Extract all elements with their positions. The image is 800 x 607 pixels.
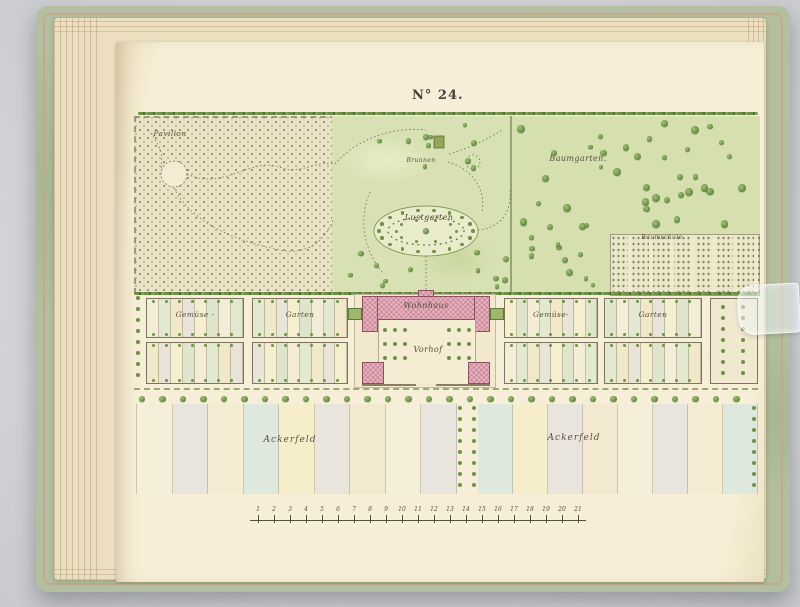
field-strip bbox=[386, 404, 422, 494]
scale-number: 18 bbox=[526, 506, 534, 513]
tree-dot-icon bbox=[688, 300, 691, 303]
tree-dot-icon bbox=[721, 327, 725, 331]
tree-dot-icon bbox=[434, 219, 437, 222]
tree-dot-icon bbox=[636, 344, 639, 347]
tree-dot-icon bbox=[471, 229, 474, 232]
tree-dot-icon bbox=[460, 216, 463, 219]
tree-dot-icon bbox=[323, 344, 326, 347]
tree-dot-icon bbox=[323, 300, 326, 303]
tree-dot-icon bbox=[588, 300, 591, 303]
tree-dot-icon bbox=[323, 333, 326, 336]
scale-number: 16 bbox=[494, 506, 502, 513]
tree-dot-icon bbox=[191, 379, 194, 382]
avenue-tree-icon bbox=[139, 396, 145, 402]
scale-number: 11 bbox=[414, 506, 422, 513]
tree-icon bbox=[358, 251, 363, 256]
scale-tick bbox=[418, 515, 419, 523]
label-gemuese-right: Gemüse- bbox=[533, 311, 569, 319]
label-wohnhaus: Wohnhaus bbox=[403, 302, 448, 310]
tree-dot-icon bbox=[136, 329, 140, 333]
avenue-tree-icon bbox=[467, 396, 473, 402]
tree-dot-icon bbox=[393, 328, 397, 332]
label-ackerfeld-left: Ackerfeld bbox=[264, 436, 317, 445]
tree-icon bbox=[685, 188, 693, 196]
avenue-tree-icon bbox=[385, 396, 391, 402]
tree-dot-icon bbox=[623, 379, 626, 382]
scale-tick bbox=[578, 515, 579, 523]
tree-dot-icon bbox=[178, 344, 181, 347]
tree-icon bbox=[719, 140, 724, 145]
scale-tick bbox=[370, 515, 371, 523]
tree-dot-icon bbox=[662, 379, 665, 382]
tree-dot-icon bbox=[623, 344, 626, 347]
avenue-tree-icon bbox=[590, 396, 596, 402]
avenue-tree-icon bbox=[692, 396, 698, 402]
bed-strip bbox=[159, 343, 171, 383]
avenue-tree-icon bbox=[549, 396, 555, 402]
tree-dot-icon bbox=[165, 333, 168, 336]
garden-plot bbox=[146, 342, 244, 384]
scale-tick bbox=[402, 515, 403, 523]
tree-dot-icon bbox=[393, 342, 397, 346]
tree-dot-icon bbox=[472, 483, 477, 488]
tree-dot-icon bbox=[383, 356, 387, 360]
wohnhaus-wing-right bbox=[474, 296, 490, 332]
tree-icon bbox=[652, 220, 660, 228]
scale-tick bbox=[482, 515, 483, 523]
tree-dot-icon bbox=[393, 356, 397, 360]
tree-dot-icon bbox=[662, 300, 665, 303]
tree-dot-icon bbox=[510, 300, 513, 303]
tree-dot-icon bbox=[662, 333, 665, 336]
forecourt-wall-right bbox=[436, 384, 490, 386]
tree-dot-icon bbox=[575, 300, 578, 303]
tree-dot-icon bbox=[284, 300, 287, 303]
bed-strip bbox=[517, 343, 529, 383]
tree-dot-icon bbox=[675, 333, 678, 336]
tree-dot-icon bbox=[467, 356, 471, 360]
tree-dot-icon bbox=[152, 333, 155, 336]
tree-icon bbox=[693, 174, 698, 179]
tree-dot-icon bbox=[741, 338, 745, 342]
tree-dot-icon bbox=[284, 333, 287, 336]
tree-dot-icon bbox=[258, 333, 261, 336]
tree-dot-icon bbox=[165, 379, 168, 382]
scale-tick bbox=[562, 515, 563, 523]
scale-tick bbox=[466, 515, 467, 523]
scale-tick bbox=[530, 515, 531, 523]
bed-strip bbox=[231, 299, 243, 337]
bed-strip bbox=[689, 343, 701, 383]
tree-dot-icon bbox=[230, 300, 233, 303]
tree-dot-icon bbox=[136, 318, 140, 322]
bed-strip bbox=[288, 343, 300, 383]
scale-tick bbox=[306, 515, 307, 523]
avenue-tree-icon bbox=[487, 396, 493, 402]
field-strip bbox=[279, 404, 315, 494]
tree-dot-icon bbox=[258, 344, 261, 347]
scale-number: 7 bbox=[352, 506, 356, 513]
tree-icon bbox=[578, 252, 583, 257]
bed-strip bbox=[574, 343, 586, 383]
bed-strip bbox=[195, 343, 207, 383]
scale-bar: 123456789101112131415161718192021 bbox=[250, 506, 590, 528]
tree-dot-icon bbox=[271, 300, 274, 303]
tree-icon bbox=[474, 250, 479, 255]
label-ackerfeld-right: Ackerfeld bbox=[548, 434, 601, 443]
garden-plot bbox=[252, 342, 348, 384]
tree-icon bbox=[600, 150, 606, 156]
tree-dot-icon bbox=[403, 328, 407, 332]
label-garten-left: Garten bbox=[286, 311, 315, 319]
tree-dot-icon bbox=[336, 344, 339, 347]
label-baumschule: Baumschule bbox=[641, 235, 682, 241]
tree-dot-icon bbox=[721, 371, 725, 375]
avenue-tree-icon bbox=[364, 396, 370, 402]
tree-dot-icon bbox=[472, 428, 477, 433]
photo-of-open-book: N° 24. bbox=[0, 0, 800, 607]
avenue-tree-icon bbox=[508, 396, 514, 402]
scale-tick bbox=[274, 515, 275, 523]
bed-strip bbox=[207, 343, 219, 383]
tree-dot-icon bbox=[721, 338, 725, 342]
tree-icon bbox=[476, 268, 481, 273]
field-strip bbox=[315, 404, 351, 494]
tree-dot-icon bbox=[395, 230, 398, 233]
tree-icon bbox=[423, 228, 429, 234]
bed-strip bbox=[505, 299, 517, 337]
field-strip bbox=[618, 404, 653, 494]
scale-number: 12 bbox=[430, 506, 438, 513]
tree-dot-icon bbox=[688, 344, 691, 347]
plastic-page-holder-tab bbox=[737, 282, 800, 335]
bed-strip bbox=[335, 299, 347, 337]
tree-dot-icon bbox=[610, 333, 613, 336]
tree-icon bbox=[465, 158, 471, 164]
tree-dot-icon bbox=[688, 379, 691, 382]
tree-icon bbox=[662, 155, 667, 160]
label-gemuese-left: Gemüse - bbox=[176, 311, 215, 319]
scale-number: 9 bbox=[384, 506, 388, 513]
scale-number: 10 bbox=[398, 506, 406, 513]
bed-strip bbox=[219, 343, 231, 383]
tree-dot-icon bbox=[721, 360, 725, 364]
outbuilding-left bbox=[362, 362, 384, 384]
tree-icon bbox=[383, 279, 388, 284]
bed-strip bbox=[265, 299, 277, 337]
tree-icon bbox=[529, 235, 534, 240]
bed-strip bbox=[147, 343, 159, 383]
avenue-tree-icon bbox=[159, 396, 165, 402]
bed-strip bbox=[253, 299, 265, 337]
avenue-tree-icon bbox=[426, 396, 432, 402]
tree-dot-icon bbox=[549, 344, 552, 347]
tree-dot-icon bbox=[510, 344, 513, 347]
bed-strip bbox=[528, 343, 540, 383]
bed-strip bbox=[653, 343, 665, 383]
tree-dot-icon bbox=[721, 305, 725, 309]
bed-strip bbox=[159, 299, 171, 337]
tree-dot-icon bbox=[549, 379, 552, 382]
tree-dot-icon bbox=[297, 344, 300, 347]
tree-icon bbox=[377, 139, 382, 144]
tree-icon bbox=[542, 175, 549, 182]
tree-dot-icon bbox=[741, 371, 745, 375]
bed-strip bbox=[335, 343, 347, 383]
tree-dot-icon bbox=[536, 300, 539, 303]
field-strip bbox=[478, 404, 513, 494]
tree-icon bbox=[426, 143, 430, 147]
tree-dot-icon bbox=[403, 342, 407, 346]
garden-plot bbox=[604, 342, 702, 384]
tree-dot-icon bbox=[588, 333, 591, 336]
tree-dot-icon bbox=[472, 450, 477, 455]
scale-tick bbox=[434, 515, 435, 523]
tree-dot-icon bbox=[662, 344, 665, 347]
tree-icon bbox=[738, 184, 746, 192]
tree-dot-icon bbox=[178, 333, 181, 336]
tree-icon bbox=[563, 204, 571, 212]
tree-dot-icon bbox=[204, 333, 207, 336]
bed-strip bbox=[665, 343, 677, 383]
scale-tick bbox=[498, 515, 499, 523]
tree-dot-icon bbox=[403, 356, 407, 360]
tree-dot-icon bbox=[383, 342, 387, 346]
garden-plot bbox=[504, 342, 598, 384]
tree-dot-icon bbox=[536, 333, 539, 336]
tree-dot-icon bbox=[523, 333, 526, 336]
tree-dot-icon bbox=[178, 379, 181, 382]
scale-number: 14 bbox=[462, 506, 470, 513]
avenue-tree-icon bbox=[569, 396, 575, 402]
open-page: N° 24. bbox=[116, 42, 764, 582]
bed-strip bbox=[586, 299, 598, 337]
field-strip bbox=[513, 404, 548, 494]
tree-dot-icon bbox=[230, 344, 233, 347]
tree-dot-icon bbox=[649, 300, 652, 303]
tree-dot-icon bbox=[467, 328, 471, 332]
scale-number: 6 bbox=[336, 506, 340, 513]
bed-strip bbox=[231, 343, 243, 383]
tree-dot-icon bbox=[230, 379, 233, 382]
bed-strip bbox=[677, 343, 689, 383]
tree-dot-icon bbox=[458, 450, 463, 455]
tree-dot-icon bbox=[336, 300, 339, 303]
bed-strip bbox=[171, 343, 183, 383]
bed-strip bbox=[617, 343, 629, 383]
bed-strip bbox=[219, 299, 231, 337]
bed-strip bbox=[277, 343, 289, 383]
book-cover: N° 24. bbox=[36, 6, 790, 592]
tree-dot-icon bbox=[448, 211, 451, 214]
tree-dot-icon bbox=[336, 333, 339, 336]
tree-dot-icon bbox=[191, 344, 194, 347]
bed-strip bbox=[629, 343, 641, 383]
tree-dot-icon bbox=[191, 300, 194, 303]
tree-dot-icon bbox=[457, 328, 461, 332]
tree-dot-icon bbox=[458, 428, 463, 433]
tree-icon bbox=[588, 145, 592, 149]
tree-dot-icon bbox=[377, 229, 380, 232]
tree-dot-icon bbox=[204, 344, 207, 347]
page-stack: N° 24. bbox=[54, 18, 766, 580]
avenue-tree-icon bbox=[631, 396, 637, 402]
scale-number: 21 bbox=[574, 506, 582, 513]
bed-strip bbox=[641, 343, 653, 383]
field-strip bbox=[244, 404, 280, 494]
scale-tick bbox=[290, 515, 291, 523]
tree-dot-icon bbox=[448, 247, 451, 250]
tree-dot-icon bbox=[297, 300, 300, 303]
label-baumgarten: Baumgarten. bbox=[549, 155, 606, 163]
field-strip bbox=[421, 404, 457, 494]
tree-dot-icon bbox=[562, 333, 565, 336]
bed-strip bbox=[689, 299, 701, 337]
field-strip bbox=[137, 404, 173, 494]
tree-dot-icon bbox=[636, 379, 639, 382]
tree-dot-icon bbox=[458, 406, 463, 411]
bed-strip bbox=[540, 343, 552, 383]
tree-dot-icon bbox=[562, 344, 565, 347]
avenue-tree-icon bbox=[733, 396, 739, 402]
scale-number: 15 bbox=[478, 506, 486, 513]
avenue-tree-icon bbox=[221, 396, 227, 402]
bed-strip bbox=[617, 299, 629, 337]
scale-number: 13 bbox=[446, 506, 454, 513]
tree-dot-icon bbox=[136, 340, 140, 344]
bed-strip bbox=[605, 299, 617, 337]
tree-dot-icon bbox=[549, 333, 552, 336]
bed-strip bbox=[605, 343, 617, 383]
tree-dot-icon bbox=[230, 333, 233, 336]
tree-icon bbox=[520, 218, 527, 225]
field-strip bbox=[173, 404, 209, 494]
tree-dot-icon bbox=[310, 333, 313, 336]
tree-dot-icon bbox=[472, 439, 477, 444]
tree-dot-icon bbox=[136, 373, 140, 377]
avenue-tree-icon bbox=[651, 396, 657, 402]
field-strip bbox=[548, 404, 583, 494]
tree-dot-icon bbox=[588, 344, 591, 347]
tree-icon bbox=[493, 276, 498, 281]
tree-dot-icon bbox=[310, 379, 313, 382]
bed-strip bbox=[574, 299, 586, 337]
tree-dot-icon bbox=[460, 243, 463, 246]
label-vorhof: Vorhof bbox=[413, 346, 442, 354]
tree-dot-icon bbox=[458, 461, 463, 466]
scale-number: 19 bbox=[542, 506, 550, 513]
tree-dot-icon bbox=[562, 379, 565, 382]
tree-dot-icon bbox=[588, 379, 591, 382]
tree-dot-icon bbox=[152, 344, 155, 347]
scale-number: 3 bbox=[288, 506, 292, 513]
tree-dot-icon bbox=[610, 379, 613, 382]
tree-icon bbox=[529, 246, 535, 252]
tree-icon bbox=[721, 220, 728, 227]
tree-dot-icon bbox=[472, 406, 477, 411]
tree-dot-icon bbox=[284, 379, 287, 382]
tree-icon bbox=[691, 126, 699, 134]
tree-dot-icon bbox=[401, 247, 404, 250]
tree-dot-icon bbox=[447, 328, 451, 332]
field-strip bbox=[208, 404, 244, 494]
field-strip bbox=[653, 404, 688, 494]
tree-dot-icon bbox=[536, 344, 539, 347]
avenue-tree-icon bbox=[610, 396, 616, 402]
bed-strip bbox=[505, 343, 517, 383]
avenue-tree-icon bbox=[323, 396, 329, 402]
tree-dot-icon bbox=[383, 328, 387, 332]
scale-tick bbox=[354, 515, 355, 523]
tree-dot-icon bbox=[217, 333, 220, 336]
avenue-tree-icon bbox=[180, 396, 186, 402]
tree-icon bbox=[495, 284, 499, 288]
tree-dot-icon bbox=[575, 379, 578, 382]
tree-dot-icon bbox=[401, 211, 404, 214]
tree-icon bbox=[678, 192, 684, 198]
scale-tick bbox=[514, 515, 515, 523]
tree-dot-icon bbox=[649, 333, 652, 336]
tree-icon bbox=[562, 257, 568, 263]
bed-strip bbox=[324, 343, 336, 383]
tree-dot-icon bbox=[636, 300, 639, 303]
tree-dot-icon bbox=[523, 344, 526, 347]
scale-tick bbox=[386, 515, 387, 523]
tree-dot-icon bbox=[447, 356, 451, 360]
tree-icon bbox=[623, 144, 629, 150]
label-brunnen: Brunnen bbox=[406, 158, 435, 164]
avenue-tree-icon bbox=[344, 396, 350, 402]
tree-dot-icon bbox=[136, 351, 140, 355]
tree-icon bbox=[503, 256, 509, 262]
tree-dot-icon bbox=[152, 379, 155, 382]
tree-icon bbox=[423, 164, 428, 169]
tree-dot-icon bbox=[271, 344, 274, 347]
label-pavillon: Pavillon bbox=[153, 130, 186, 138]
page-edges-top bbox=[54, 18, 766, 32]
wohnhaus-wing-left bbox=[362, 296, 378, 332]
tree-dot-icon bbox=[688, 333, 691, 336]
scale-number: 20 bbox=[558, 506, 566, 513]
bed-strip bbox=[300, 343, 312, 383]
tree-dot-icon bbox=[636, 333, 639, 336]
tree-dot-icon bbox=[458, 417, 463, 422]
tree-dot-icon bbox=[472, 417, 477, 422]
tree-dot-icon bbox=[323, 379, 326, 382]
tree-dot-icon bbox=[165, 300, 168, 303]
tree-dot-icon bbox=[675, 379, 678, 382]
tree-dot-icon bbox=[336, 379, 339, 382]
ackerfeld-left-area bbox=[136, 404, 457, 494]
tree-dot-icon bbox=[271, 333, 274, 336]
bed-strip bbox=[677, 299, 689, 337]
tree-dot-icon bbox=[455, 230, 458, 233]
tree-icon bbox=[685, 147, 690, 152]
tree-dot-icon bbox=[310, 344, 313, 347]
avenue-tree-icon bbox=[241, 396, 247, 402]
tree-dot-icon bbox=[416, 250, 419, 253]
tree-dot-icon bbox=[136, 307, 140, 311]
tree-icon bbox=[579, 223, 586, 230]
tree-dot-icon bbox=[449, 223, 452, 226]
tree-dot-icon bbox=[380, 236, 383, 239]
tree-dot-icon bbox=[472, 472, 477, 477]
tree-dot-icon bbox=[510, 333, 513, 336]
scale-number: 8 bbox=[368, 506, 372, 513]
ackerfeld-right-area bbox=[478, 404, 758, 494]
forecourt-wall-left bbox=[362, 384, 416, 386]
tree-dot-icon bbox=[721, 349, 725, 353]
